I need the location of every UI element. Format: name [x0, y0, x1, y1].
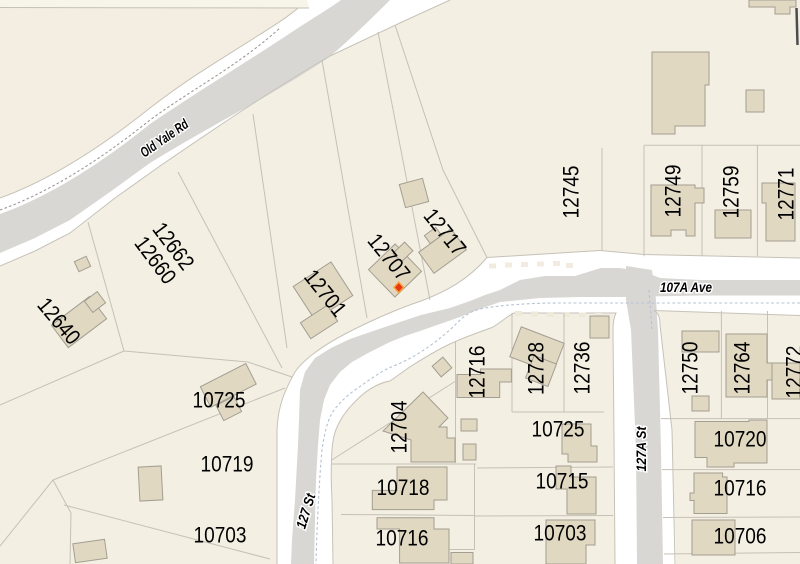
svg-text:127A St: 127A St — [633, 425, 649, 471]
svg-text:12728: 12728 — [524, 342, 549, 395]
svg-text:12772: 12772 — [782, 346, 800, 399]
svg-text:12704: 12704 — [387, 401, 412, 454]
svg-text:10703: 10703 — [194, 523, 247, 548]
svg-text:10719: 10719 — [201, 452, 254, 477]
svg-text:10716: 10716 — [714, 476, 767, 501]
svg-text:12750: 12750 — [678, 342, 703, 395]
svg-text:12759: 12759 — [719, 166, 744, 219]
svg-text:10725: 10725 — [193, 388, 246, 413]
svg-text:10718: 10718 — [377, 475, 430, 500]
svg-text:12771: 12771 — [774, 168, 799, 221]
svg-text:10720: 10720 — [714, 427, 767, 452]
svg-text:12745: 12745 — [559, 166, 584, 219]
svg-text:107A Ave: 107A Ave — [660, 279, 712, 295]
svg-text:12716: 12716 — [465, 346, 490, 399]
svg-text:10715: 10715 — [536, 469, 589, 494]
svg-text:12736: 12736 — [570, 342, 595, 395]
svg-text:10706: 10706 — [714, 524, 767, 549]
svg-text:12749: 12749 — [661, 165, 686, 218]
svg-text:10716: 10716 — [376, 526, 429, 551]
svg-text:12764: 12764 — [730, 342, 755, 395]
svg-text:10703: 10703 — [534, 521, 587, 546]
svg-text:10725: 10725 — [532, 417, 585, 442]
